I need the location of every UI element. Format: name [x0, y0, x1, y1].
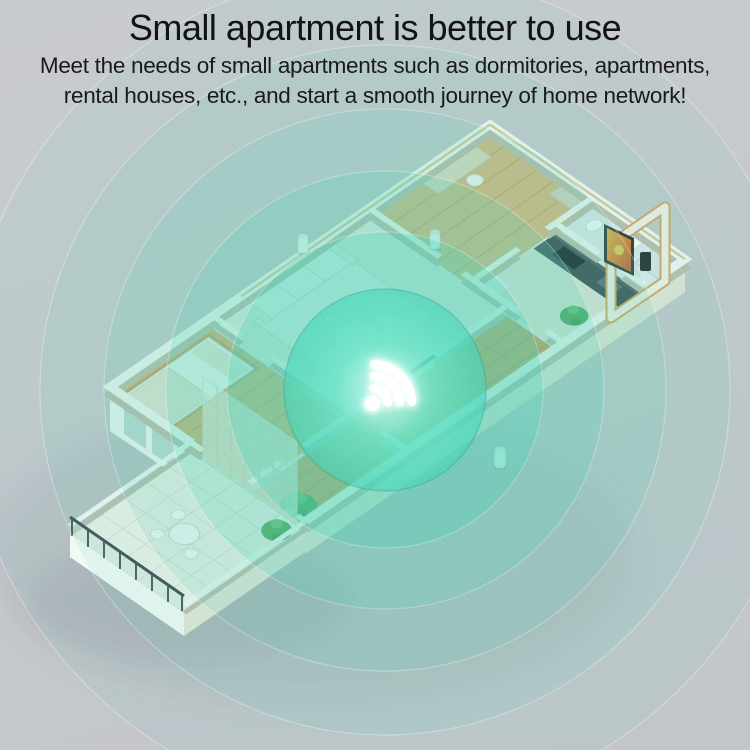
- page-subtitle-line1: Meet the needs of small apartments such …: [0, 52, 750, 80]
- header: Small apartment is better to use Meet th…: [0, 6, 750, 110]
- page-subtitle-line2: rental houses, etc., and start a smooth …: [0, 82, 750, 110]
- promo-banner: Small apartment is better to use Meet th…: [0, 0, 750, 750]
- page-title: Small apartment is better to use: [0, 6, 750, 50]
- apartment-illustration: [0, 0, 750, 750]
